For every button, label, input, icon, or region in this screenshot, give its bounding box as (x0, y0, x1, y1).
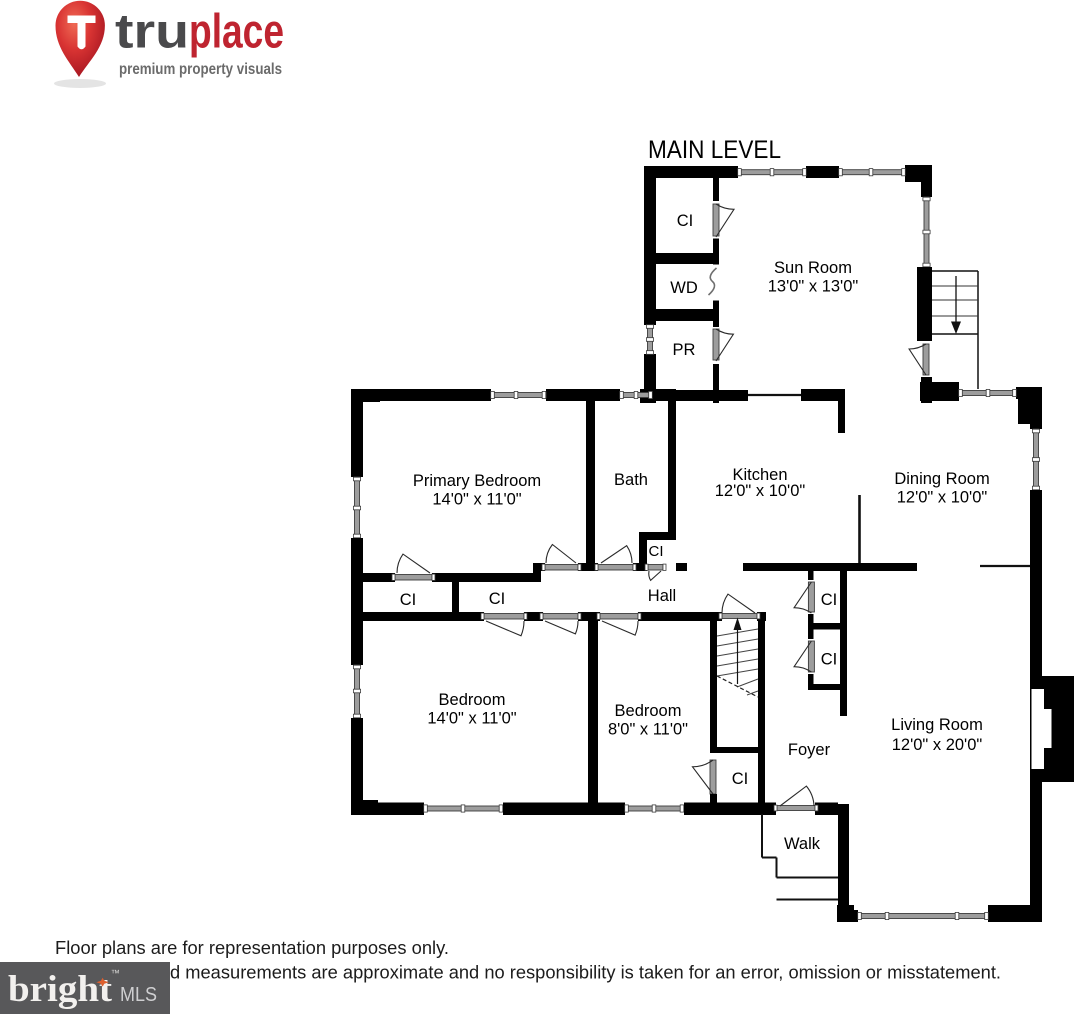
svg-text:12'0" x 20'0": 12'0" x 20'0" (892, 736, 983, 754)
svg-text:CI: CI (400, 591, 417, 609)
svg-text:MLS: MLS (120, 984, 157, 1006)
svg-text:Foyer: Foyer (788, 741, 831, 759)
svg-text:12'0" x 10'0": 12'0" x 10'0" (715, 482, 806, 500)
svg-text:13'0" x 13'0": 13'0" x 13'0" (768, 278, 859, 296)
svg-text:WD: WD (670, 279, 698, 297)
svg-text:Bath: Bath (614, 471, 648, 489)
svg-text:Bedroom: Bedroom (439, 691, 506, 709)
svg-text:Sun Room: Sun Room (774, 259, 852, 277)
svg-text:MAIN LEVEL: MAIN LEVEL (648, 136, 781, 164)
svg-text:CI: CI (821, 591, 838, 609)
svg-text:CI: CI (489, 590, 506, 608)
svg-text:bright: bright (8, 969, 113, 1010)
svg-text:Hall: Hall (648, 587, 676, 605)
svg-text:8'0" x 11'0": 8'0" x 11'0" (608, 721, 688, 739)
svg-text:premium property visuals: premium property visuals (119, 61, 282, 78)
svg-text:Living Room: Living Room (891, 716, 983, 734)
svg-text:CI: CI (649, 543, 664, 560)
svg-text:Primary Bedroom: Primary Bedroom (413, 472, 541, 490)
svg-text:tru: tru (115, 6, 189, 59)
svg-text:14'0" x 11'0": 14'0" x 11'0" (432, 491, 521, 509)
svg-text:Dining Room: Dining Room (894, 470, 989, 488)
svg-text:Bedroom: Bedroom (615, 702, 682, 720)
svg-text:12'0" x 10'0": 12'0" x 10'0" (897, 489, 988, 507)
svg-text:Floor plans are for representa: Floor plans are for representation purpo… (55, 938, 449, 958)
svg-text:PR: PR (673, 341, 696, 359)
svg-text:Walk: Walk (784, 835, 821, 853)
svg-text:CI: CI (677, 212, 694, 230)
svg-text:CI: CI (732, 770, 749, 788)
svg-text:CI: CI (821, 651, 838, 669)
svg-text:14'0" x 11'0": 14'0" x 11'0" (427, 710, 516, 728)
svg-text:place: place (189, 6, 284, 59)
svg-text:d measurements are approximate: d measurements are approximate and no re… (170, 963, 1001, 983)
svg-text:™: ™ (111, 968, 120, 978)
